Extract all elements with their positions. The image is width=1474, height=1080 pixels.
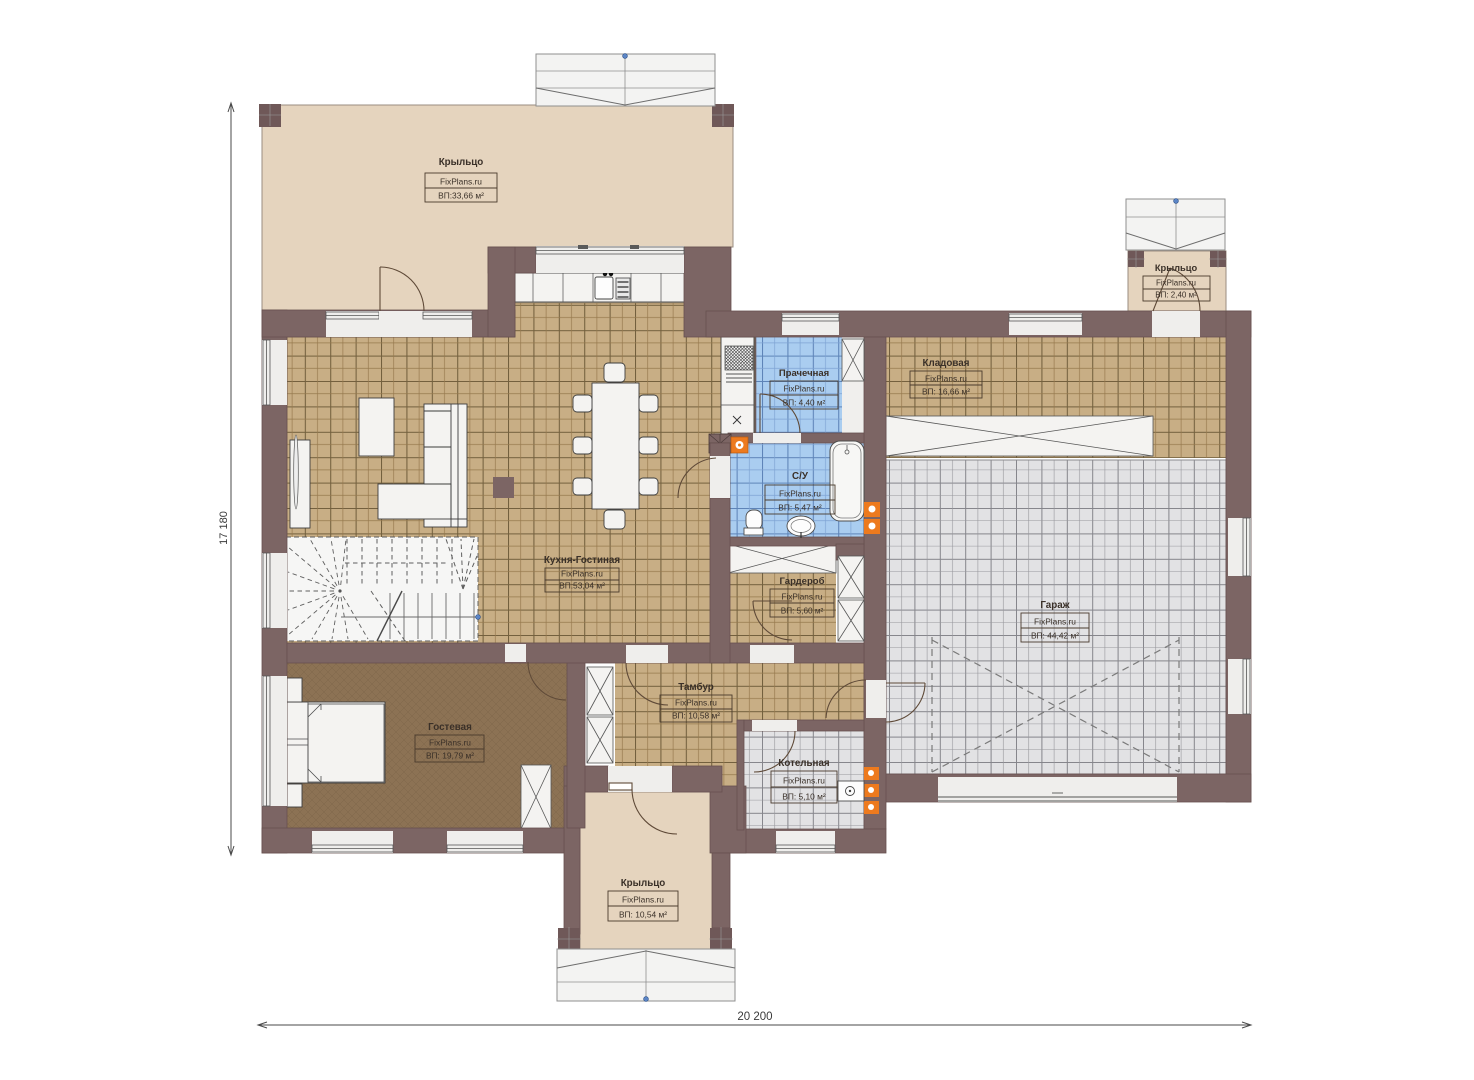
svg-text:ВП: 2,40 м²: ВП: 2,40 м² — [1155, 291, 1197, 300]
svg-text:ВП: 5,47 м²: ВП: 5,47 м² — [778, 503, 822, 513]
svg-text:FixPlans.ru: FixPlans.ru — [429, 738, 471, 748]
svg-text:Кладовая: Кладовая — [923, 358, 970, 369]
svg-text:FixPlans.ru: FixPlans.ru — [561, 569, 603, 579]
svg-text:FixPlans.ru: FixPlans.ru — [440, 177, 482, 187]
svg-text:FixPlans.ru: FixPlans.ru — [779, 489, 821, 499]
svg-text:FixPlans.ru: FixPlans.ru — [1034, 617, 1076, 627]
svg-text:20 200: 20 200 — [737, 1011, 772, 1023]
svg-text:FixPlans.ru: FixPlans.ru — [782, 593, 823, 602]
svg-text:FixPlans.ru: FixPlans.ru — [784, 385, 825, 394]
svg-text:Прачечная: Прачечная — [779, 368, 829, 379]
svg-text:ВП: 5,60 м²: ВП: 5,60 м² — [781, 607, 824, 616]
svg-text:ВП: 44,42 м²: ВП: 44,42 м² — [1031, 631, 1079, 641]
svg-text:FixPlans.ru: FixPlans.ru — [622, 895, 664, 905]
svg-text:Крыльцо: Крыльцо — [439, 157, 484, 168]
svg-text:ВП: 10,54 м²: ВП: 10,54 м² — [619, 910, 667, 920]
svg-text:FixPlans.ru: FixPlans.ru — [1156, 279, 1196, 288]
svg-text:ВП: 10,58 м²: ВП: 10,58 м² — [672, 711, 720, 721]
svg-text:Гараж: Гараж — [1040, 600, 1070, 611]
svg-text:ВП: 5,10 м²: ВП: 5,10 м² — [782, 792, 826, 802]
svg-text:С/У: С/У — [792, 471, 809, 482]
svg-text:ВП: 19,79 м²: ВП: 19,79 м² — [426, 751, 474, 761]
svg-text:ВП:33,66 м²: ВП:33,66 м² — [438, 191, 484, 201]
svg-text:Гостевая: Гостевая — [428, 722, 472, 733]
svg-text:ВП: 16,66 м²: ВП: 16,66 м² — [922, 387, 970, 397]
svg-text:Котельная: Котельная — [778, 758, 830, 769]
svg-text:FixPlans.ru: FixPlans.ru — [925, 374, 967, 384]
svg-text:Крыльцо: Крыльцо — [621, 878, 666, 889]
svg-text:Кухня-Гостиная: Кухня-Гостиная — [544, 555, 620, 566]
svg-text:FixPlans.ru: FixPlans.ru — [783, 776, 825, 786]
svg-text:Гардероб: Гардероб — [780, 576, 825, 587]
svg-text:FixPlans.ru: FixPlans.ru — [675, 698, 717, 708]
svg-text:ВП: 4,40 м²: ВП: 4,40 м² — [783, 399, 826, 408]
svg-text:17 180: 17 180 — [218, 511, 230, 545]
svg-text:Крыльцо: Крыльцо — [1155, 263, 1198, 273]
svg-text:ВП:53,04 м²: ВП:53,04 м² — [559, 581, 605, 591]
svg-text:Тамбур: Тамбур — [678, 682, 714, 693]
